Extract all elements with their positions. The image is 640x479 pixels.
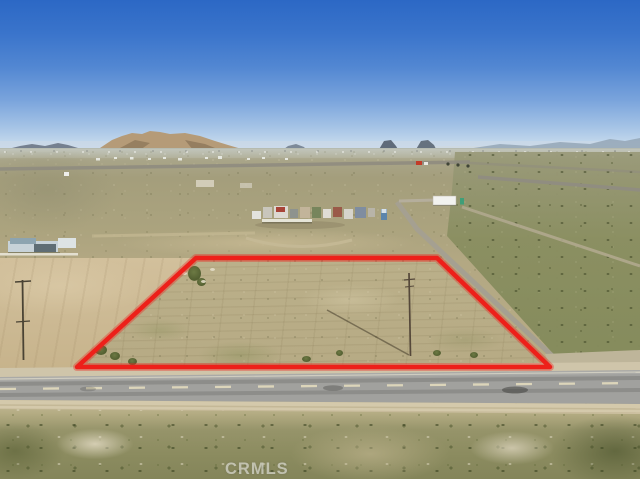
- rock-patch: [210, 268, 215, 271]
- graded-strip: [88, 226, 443, 260]
- crmls-watermark: CRMLS: [225, 460, 295, 478]
- bush: [433, 350, 441, 356]
- rock-patch: [201, 280, 206, 283]
- bush: [302, 356, 311, 362]
- bush: [128, 358, 137, 365]
- bush: [110, 352, 120, 360]
- aerial-photo: CRMLS: [0, 0, 640, 479]
- bush: [470, 352, 478, 358]
- bush: [336, 350, 343, 356]
- sky: [0, 0, 640, 152]
- rock-patch: [182, 272, 187, 275]
